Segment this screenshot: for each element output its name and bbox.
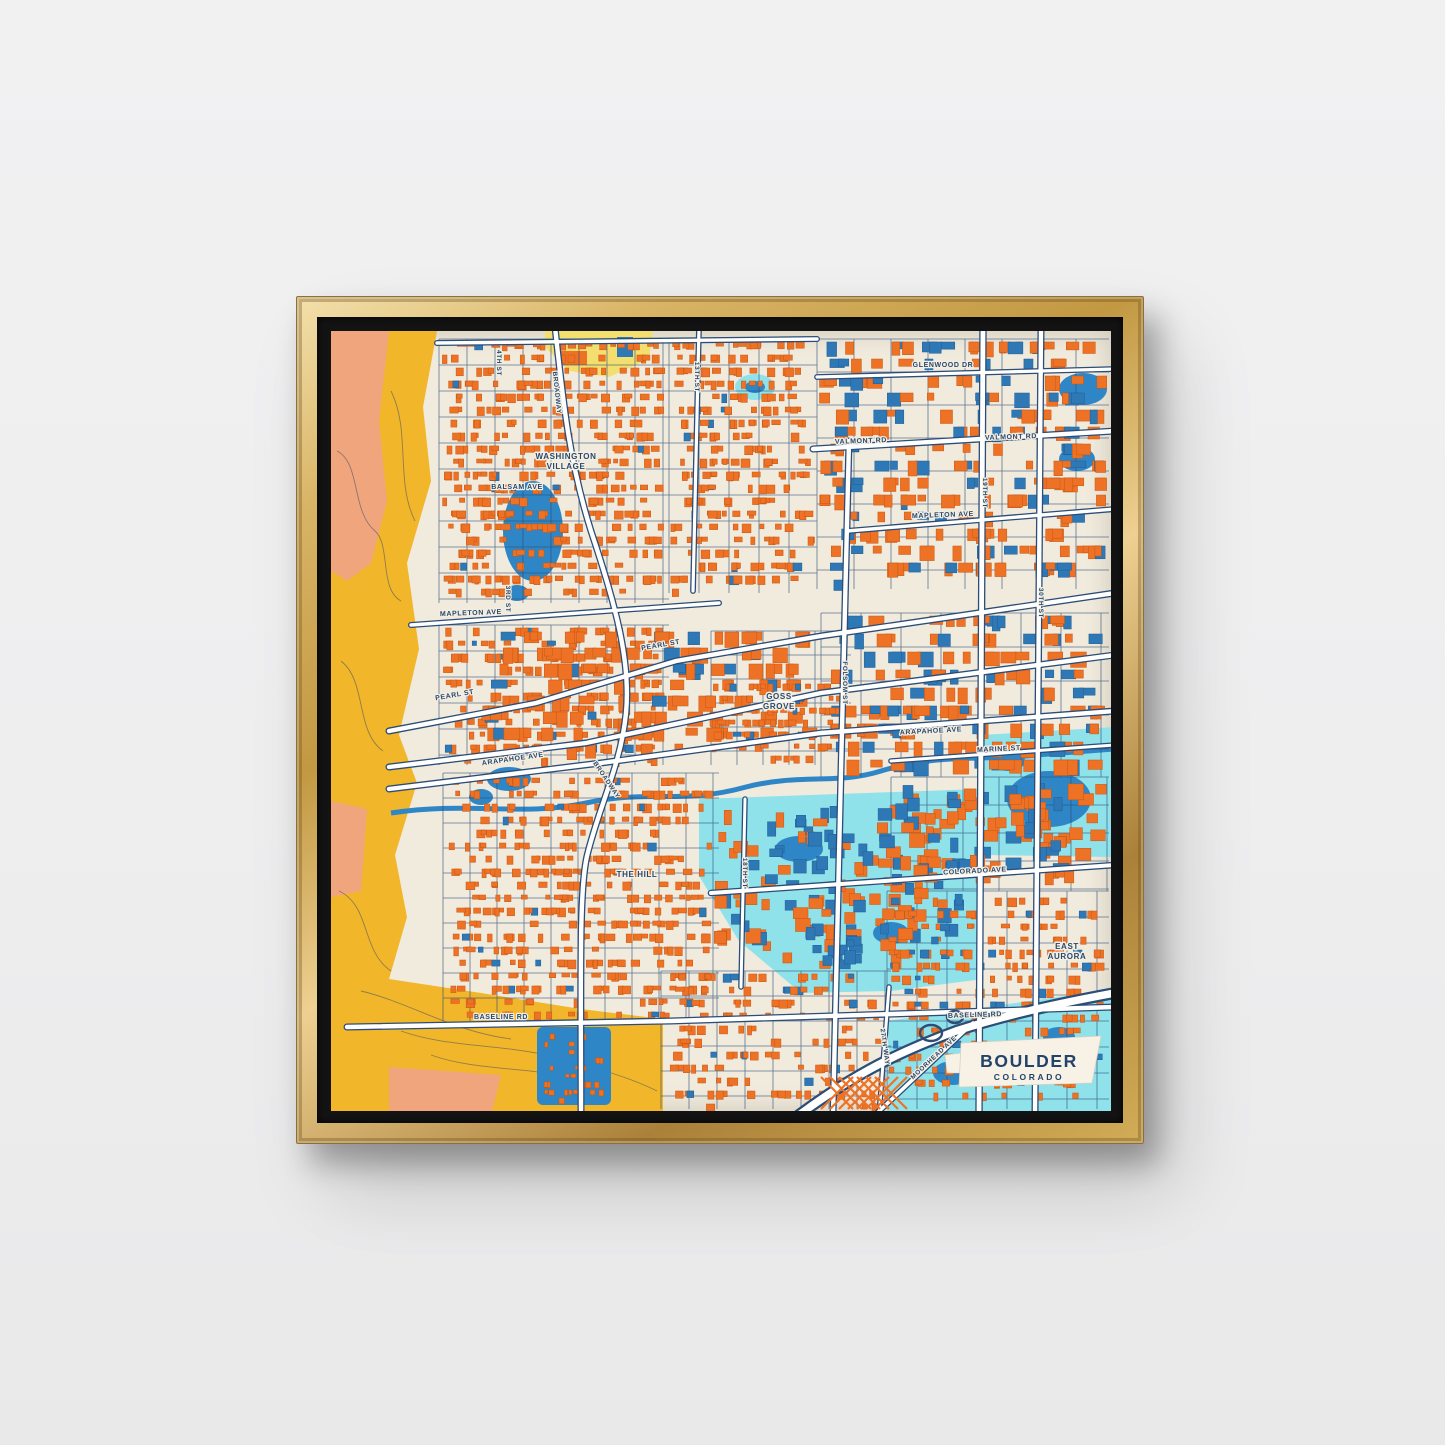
- building: [1073, 688, 1084, 698]
- building: [798, 1065, 803, 1069]
- building: [606, 934, 615, 941]
- building: [561, 648, 573, 663]
- building: [605, 632, 616, 648]
- building: [609, 537, 616, 541]
- building: [560, 843, 565, 849]
- building: [816, 1065, 823, 1073]
- building: [447, 446, 452, 454]
- building: [555, 576, 563, 581]
- building: [657, 394, 663, 400]
- building: [699, 433, 708, 438]
- building: [680, 999, 688, 1005]
- building: [503, 817, 508, 825]
- building: [743, 1052, 748, 1058]
- building: [734, 576, 743, 584]
- building: [854, 900, 866, 912]
- building: [1096, 495, 1105, 506]
- building: [899, 359, 914, 366]
- building: [513, 778, 520, 787]
- building: [612, 524, 621, 531]
- building: [892, 342, 900, 355]
- building: [877, 634, 892, 647]
- building: [462, 550, 469, 556]
- building: [814, 987, 822, 995]
- building: [557, 986, 561, 994]
- map-title: BOULDER: [980, 1051, 1078, 1071]
- building: [686, 960, 693, 966]
- building: [915, 976, 920, 980]
- building: [519, 524, 527, 528]
- building: [455, 563, 459, 570]
- building: [646, 381, 650, 388]
- building: [672, 908, 678, 914]
- building: [495, 433, 500, 441]
- building: [465, 843, 469, 851]
- building: [542, 758, 546, 766]
- building: [900, 950, 909, 958]
- building: [1054, 798, 1062, 811]
- building: [761, 684, 766, 689]
- building: [821, 744, 828, 750]
- building: [495, 908, 499, 916]
- building: [678, 960, 682, 966]
- building: [780, 511, 785, 517]
- building: [558, 817, 562, 823]
- building: [805, 1078, 814, 1086]
- building: [495, 576, 501, 582]
- building: [492, 804, 498, 812]
- building: [855, 862, 864, 874]
- building: [813, 945, 822, 953]
- building: [821, 461, 831, 474]
- building: [1061, 670, 1076, 679]
- building: [870, 894, 881, 905]
- building: [465, 472, 470, 478]
- building: [773, 648, 788, 663]
- building: [506, 511, 513, 516]
- building: [1008, 495, 1022, 507]
- building: [627, 576, 633, 582]
- building: [1001, 924, 1010, 928]
- building: [688, 407, 694, 414]
- building: [715, 896, 727, 908]
- building: [705, 791, 713, 798]
- building: [564, 869, 569, 874]
- building: [649, 999, 657, 1005]
- building: [538, 934, 543, 943]
- building: [633, 934, 641, 940]
- building: [505, 895, 512, 902]
- building: [635, 817, 643, 823]
- building: [466, 882, 475, 890]
- building: [644, 895, 651, 903]
- building: [589, 563, 598, 569]
- building: [568, 856, 574, 860]
- building: [547, 641, 555, 645]
- building: [550, 498, 557, 502]
- building: [1092, 1015, 1099, 1021]
- building: [809, 898, 823, 909]
- building: [1089, 634, 1102, 644]
- building: [675, 778, 683, 782]
- building: [896, 804, 908, 820]
- building: [715, 632, 723, 644]
- building: [1008, 911, 1014, 918]
- building: [470, 921, 477, 926]
- building: [471, 433, 477, 441]
- building: [539, 355, 544, 361]
- building: [572, 589, 577, 597]
- building: [1096, 461, 1106, 473]
- building: [563, 550, 571, 558]
- building: [702, 987, 709, 993]
- building: [1006, 950, 1012, 959]
- building: [914, 742, 922, 758]
- building: [545, 804, 554, 811]
- building: [904, 512, 912, 520]
- building: [615, 563, 623, 567]
- building: [805, 1091, 811, 1099]
- building: [472, 641, 476, 646]
- building: [687, 1091, 694, 1098]
- building: [545, 433, 549, 440]
- building: [739, 420, 745, 427]
- building: [733, 1052, 737, 1058]
- building: [458, 921, 466, 929]
- building: [1067, 1015, 1073, 1021]
- building: [719, 832, 726, 841]
- building: [761, 744, 769, 748]
- building: [469, 732, 474, 739]
- building: [541, 817, 549, 826]
- building: [644, 576, 651, 585]
- building: [914, 1002, 922, 1006]
- building: [505, 459, 509, 466]
- building: [991, 1002, 996, 1007]
- building: [939, 900, 948, 910]
- building: [599, 459, 608, 463]
- building: [836, 410, 849, 424]
- building: [722, 511, 726, 516]
- building: [556, 563, 561, 567]
- building: [1066, 342, 1079, 350]
- building: [806, 927, 815, 940]
- building: [902, 823, 914, 833]
- building: [513, 576, 520, 583]
- building: [845, 913, 855, 924]
- building: [618, 830, 627, 839]
- building: [749, 381, 755, 385]
- building: [863, 852, 873, 866]
- building: [569, 1050, 574, 1054]
- building: [581, 830, 586, 835]
- building: [697, 1026, 705, 1035]
- building: [671, 974, 676, 981]
- building: [614, 511, 623, 519]
- building: [914, 888, 928, 899]
- building: [747, 1091, 755, 1099]
- building: [812, 974, 817, 980]
- building: [504, 355, 509, 360]
- building: [527, 999, 534, 1004]
- building: [640, 394, 649, 400]
- building: [524, 589, 532, 596]
- building: [503, 986, 509, 994]
- building: [773, 537, 779, 544]
- building: [734, 537, 742, 542]
- building: [903, 785, 913, 798]
- building: [724, 810, 731, 824]
- building: [1065, 634, 1072, 642]
- building: [595, 433, 599, 438]
- building: [678, 355, 683, 359]
- building: [888, 706, 899, 716]
- wall-background: { "artwork": { "title": "BOULDER", "subt…: [0, 0, 1445, 1445]
- building: [775, 524, 781, 529]
- building: [463, 446, 468, 453]
- building: [683, 804, 687, 812]
- building: [725, 407, 732, 415]
- building: [1097, 376, 1107, 388]
- building: [903, 706, 911, 714]
- building: [949, 800, 961, 808]
- building: [687, 446, 694, 451]
- building: [449, 843, 454, 850]
- building: [762, 899, 770, 910]
- building: [1006, 963, 1011, 969]
- building: [712, 368, 720, 374]
- building: [680, 1026, 685, 1031]
- building: [873, 546, 881, 553]
- building: [544, 648, 552, 656]
- building: [683, 1065, 690, 1073]
- building: [688, 632, 700, 645]
- building: [600, 830, 604, 838]
- building: [697, 524, 702, 528]
- building: [908, 652, 921, 665]
- building: [1021, 937, 1028, 941]
- map-subtitle: COLORADO: [994, 1072, 1064, 1082]
- building: [460, 498, 465, 502]
- building: [599, 355, 606, 361]
- building: [946, 563, 957, 573]
- building: [457, 908, 466, 912]
- building: [539, 511, 546, 519]
- building: [708, 511, 717, 518]
- building: [773, 407, 778, 415]
- building: [492, 472, 496, 477]
- building: [508, 394, 516, 403]
- building: [688, 908, 693, 915]
- building: [924, 688, 934, 701]
- building: [640, 999, 645, 1006]
- building: [460, 973, 467, 980]
- building: [455, 869, 462, 874]
- building: [481, 817, 490, 824]
- building: [493, 407, 501, 415]
- building: [487, 830, 492, 837]
- building: [928, 834, 940, 843]
- building: [1094, 950, 1100, 957]
- building: [953, 546, 961, 561]
- building: [788, 394, 797, 399]
- building: [552, 869, 556, 873]
- building: [1045, 376, 1056, 391]
- building: [700, 563, 705, 572]
- building: [682, 472, 687, 481]
- building: [884, 478, 896, 492]
- building: [1075, 976, 1080, 985]
- building: [481, 843, 487, 848]
- building: [583, 550, 590, 557]
- building: [963, 444, 970, 453]
- building: [790, 381, 797, 386]
- building: [741, 355, 748, 362]
- building: [545, 1090, 548, 1094]
- building: [680, 895, 685, 899]
- building: [543, 563, 550, 568]
- building: [793, 563, 802, 571]
- building: [655, 856, 662, 865]
- building: [512, 869, 520, 877]
- building: [620, 973, 627, 980]
- building: [546, 895, 550, 899]
- building: [473, 895, 480, 899]
- building: [847, 940, 854, 947]
- building: [632, 407, 639, 416]
- building: [521, 817, 526, 825]
- building: [678, 856, 684, 862]
- building: [1077, 444, 1091, 455]
- building: [629, 693, 638, 702]
- building: [516, 667, 521, 671]
- building: [957, 989, 961, 994]
- building: [894, 1041, 898, 1048]
- building: [596, 511, 601, 520]
- building: [963, 652, 970, 663]
- building: [701, 550, 710, 559]
- building: [706, 576, 712, 583]
- building: [833, 478, 843, 486]
- building: [1022, 924, 1027, 930]
- building: [626, 934, 632, 943]
- building: [1072, 376, 1084, 384]
- building: [963, 376, 972, 387]
- building: [480, 960, 486, 967]
- picture-frame: WASHINGTONVILLAGEBALSAM AVEMAPLETON AVEM…: [296, 296, 1144, 1144]
- building: [1013, 963, 1018, 972]
- building: [701, 934, 710, 943]
- building: [608, 960, 612, 967]
- building: [848, 410, 857, 421]
- building: [731, 459, 739, 465]
- building: [464, 485, 471, 490]
- building: [1046, 529, 1053, 541]
- building: [851, 359, 861, 373]
- building: [1090, 724, 1099, 734]
- building: [910, 833, 925, 847]
- building: [751, 407, 756, 413]
- building: [492, 882, 498, 887]
- building: [481, 472, 487, 476]
- building: [742, 524, 751, 533]
- building: [500, 537, 504, 542]
- building: [653, 986, 661, 990]
- building: [520, 472, 529, 481]
- building: [700, 459, 707, 468]
- building: [557, 882, 561, 889]
- building: [620, 589, 626, 593]
- building: [798, 420, 802, 427]
- building: [443, 498, 447, 506]
- building: [672, 589, 678, 597]
- building: [778, 865, 790, 874]
- building: [805, 684, 810, 689]
- building: [726, 732, 732, 739]
- building: [477, 368, 482, 377]
- building: [783, 684, 788, 691]
- building: [901, 857, 911, 871]
- building: [532, 778, 540, 783]
- building: [489, 641, 495, 648]
- building: [750, 1052, 758, 1060]
- building: [601, 843, 609, 852]
- building: [559, 1098, 564, 1104]
- building: [642, 712, 651, 727]
- building: [654, 791, 660, 800]
- building: [760, 524, 764, 529]
- building: [1076, 848, 1091, 860]
- building: [785, 368, 794, 377]
- street-label: EAST: [1055, 942, 1079, 951]
- building: [784, 355, 793, 360]
- building: [999, 760, 1015, 770]
- building: [547, 1012, 552, 1019]
- building: [451, 986, 456, 993]
- building: [498, 498, 503, 504]
- building: [871, 760, 883, 767]
- building: [562, 973, 570, 977]
- building: [820, 393, 830, 403]
- building: [884, 495, 892, 507]
- building: [444, 576, 453, 581]
- building: [611, 485, 619, 492]
- building: [1024, 359, 1033, 370]
- building: [770, 498, 775, 503]
- building: [484, 511, 490, 519]
- building: [461, 563, 467, 570]
- building: [748, 1026, 752, 1035]
- building: [796, 815, 805, 826]
- building: [719, 1026, 727, 1034]
- building: [699, 869, 704, 876]
- building: [893, 963, 899, 972]
- building: [731, 914, 740, 924]
- building: [1062, 393, 1068, 404]
- building: [765, 459, 772, 465]
- building: [1079, 911, 1086, 918]
- building: [451, 654, 458, 662]
- building: [524, 908, 530, 914]
- building: [575, 524, 583, 532]
- building: [1015, 478, 1026, 489]
- building: [989, 950, 996, 957]
- building: [751, 537, 755, 545]
- building: [713, 459, 718, 464]
- building: [650, 830, 655, 836]
- building: [968, 924, 973, 929]
- building: [759, 720, 764, 727]
